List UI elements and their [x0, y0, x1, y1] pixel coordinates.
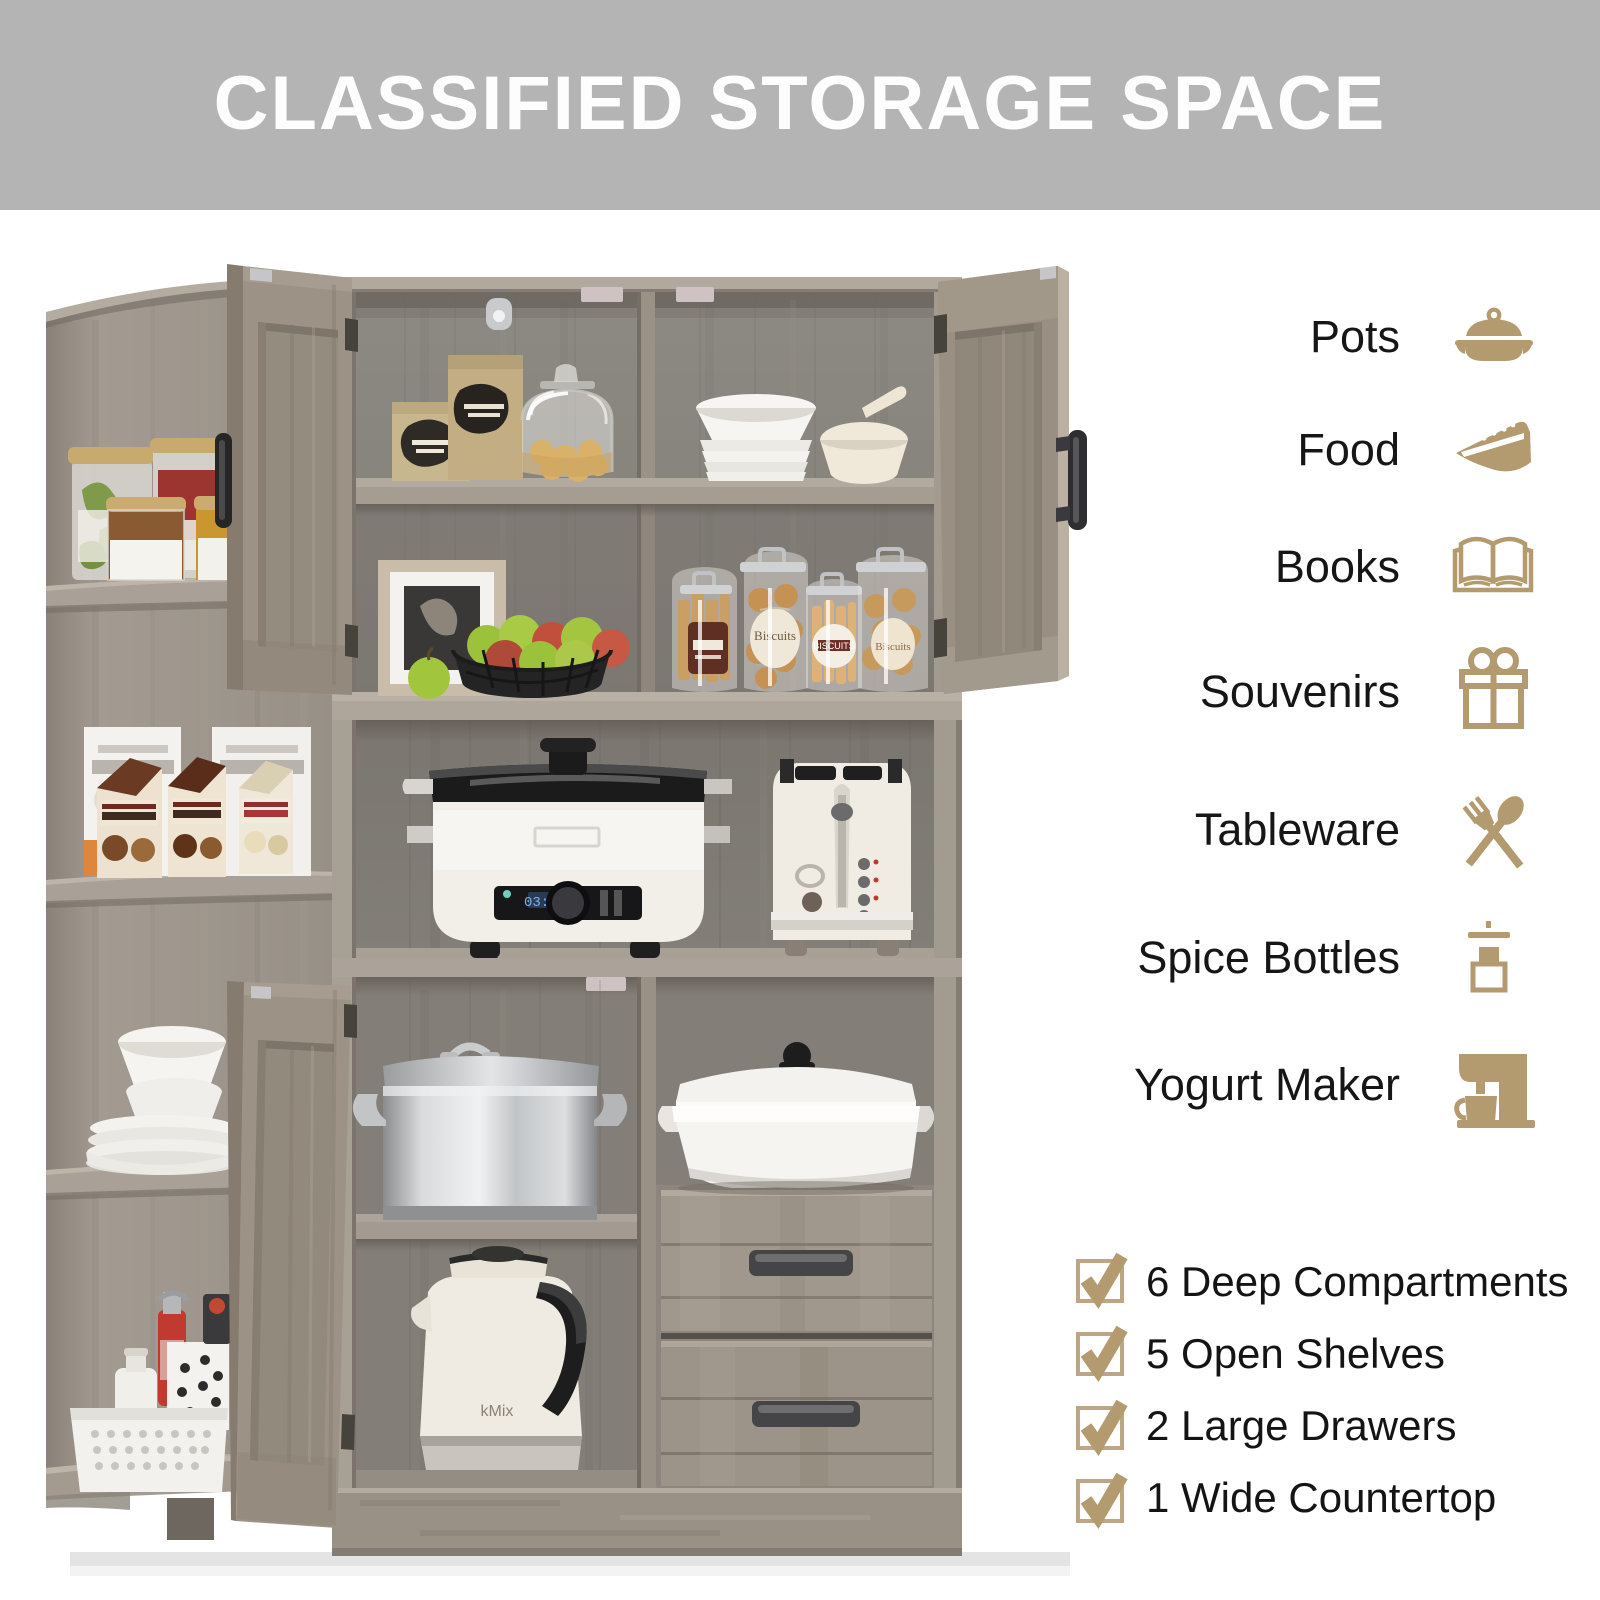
svg-text:Biscuits: Biscuits	[875, 641, 910, 653]
svg-text:BISCUITS: BISCUITS	[813, 641, 855, 651]
svg-text:kMix: kMix	[481, 1403, 514, 1420]
svg-text:Biscuits: Biscuits	[754, 628, 796, 643]
